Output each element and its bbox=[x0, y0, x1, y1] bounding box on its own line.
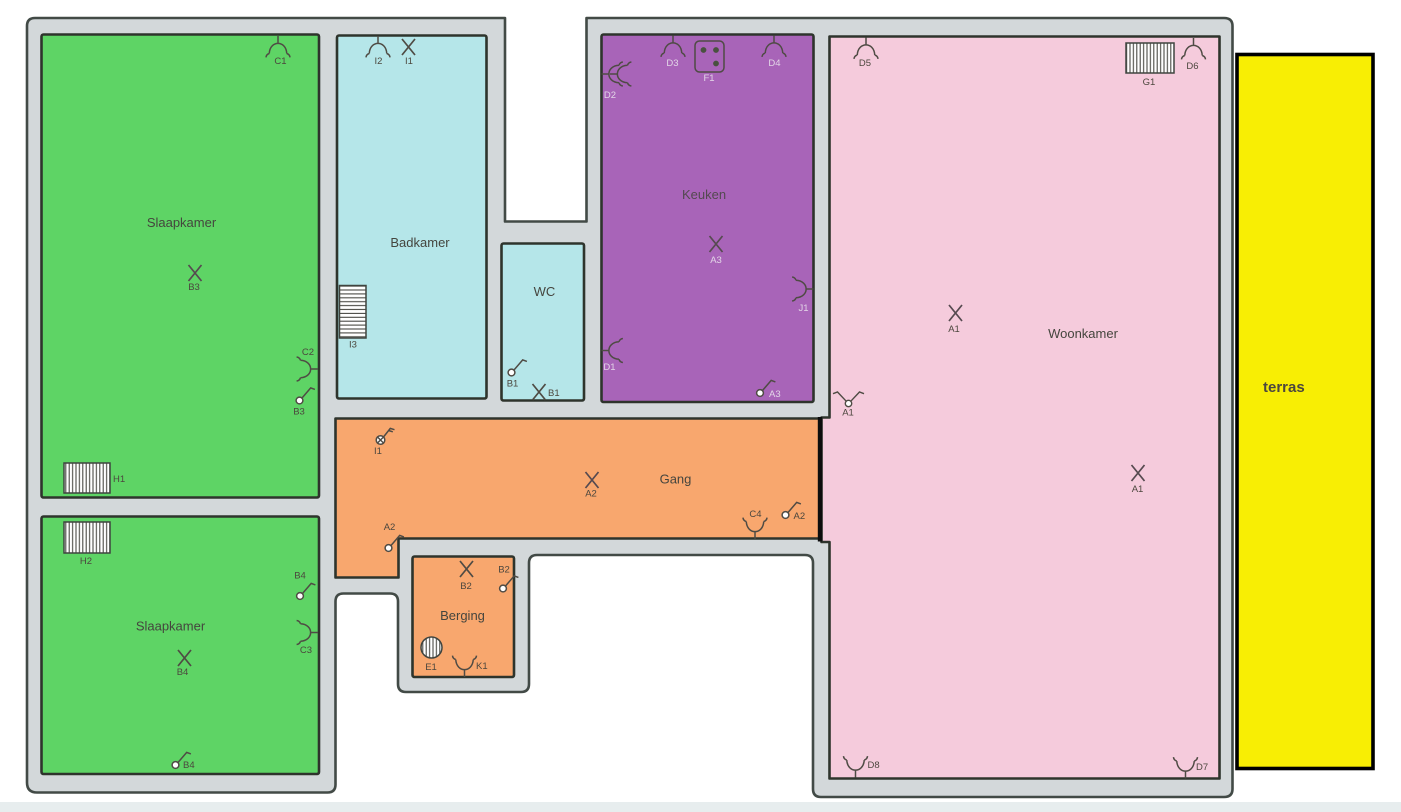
svg-text:H2: H2 bbox=[80, 556, 92, 567]
svg-text:Berging: Berging bbox=[440, 608, 485, 623]
svg-text:D5: D5 bbox=[859, 58, 871, 69]
svg-text:C4: C4 bbox=[749, 509, 761, 520]
svg-text:A1: A1 bbox=[1132, 484, 1144, 495]
svg-text:Badkamer: Badkamer bbox=[390, 235, 450, 250]
svg-text:Slaapkamer: Slaapkamer bbox=[136, 619, 206, 634]
svg-text:E1: E1 bbox=[425, 662, 437, 673]
svg-text:Gang: Gang bbox=[660, 472, 692, 487]
svg-text:A1: A1 bbox=[948, 324, 960, 335]
svg-text:A3: A3 bbox=[769, 389, 781, 400]
svg-text:Keuken: Keuken bbox=[682, 187, 726, 202]
svg-text:J1: J1 bbox=[798, 303, 808, 314]
svg-text:B2: B2 bbox=[460, 581, 472, 592]
svg-text:B4: B4 bbox=[183, 760, 195, 771]
svg-text:K1: K1 bbox=[476, 661, 488, 672]
svg-text:D2: D2 bbox=[604, 90, 616, 101]
svg-text:B1: B1 bbox=[507, 379, 519, 390]
svg-text:I1: I1 bbox=[405, 56, 413, 67]
svg-text:G1: G1 bbox=[1143, 77, 1156, 88]
svg-text:C2: C2 bbox=[302, 347, 314, 358]
svg-text:Slaapkamer: Slaapkamer bbox=[147, 215, 217, 230]
svg-text:A2: A2 bbox=[794, 511, 806, 522]
svg-text:C1: C1 bbox=[274, 56, 286, 67]
svg-text:B2: B2 bbox=[498, 565, 510, 576]
svg-text:C3: C3 bbox=[300, 645, 312, 656]
svg-text:A1: A1 bbox=[842, 408, 854, 419]
svg-text:A2: A2 bbox=[384, 522, 396, 533]
svg-text:D6: D6 bbox=[1186, 61, 1198, 72]
svg-text:A2: A2 bbox=[585, 489, 597, 500]
svg-text:B4: B4 bbox=[177, 667, 189, 678]
svg-text:terras: terras bbox=[1263, 379, 1305, 396]
svg-text:D4: D4 bbox=[768, 58, 780, 69]
svg-text:B3: B3 bbox=[188, 282, 200, 293]
svg-text:D7: D7 bbox=[1196, 762, 1208, 773]
svg-text:I3: I3 bbox=[349, 340, 357, 351]
svg-text:WC: WC bbox=[534, 284, 556, 299]
svg-text:D1: D1 bbox=[603, 362, 615, 373]
svg-text:I2: I2 bbox=[375, 56, 383, 67]
svg-text:D8: D8 bbox=[868, 760, 880, 771]
svg-text:I1: I1 bbox=[374, 446, 382, 457]
svg-text:B1: B1 bbox=[548, 388, 560, 399]
svg-text:A3: A3 bbox=[710, 255, 722, 266]
svg-text:H1: H1 bbox=[113, 474, 125, 485]
svg-text:D3: D3 bbox=[666, 58, 678, 69]
svg-text:B4: B4 bbox=[294, 571, 306, 582]
svg-text:Woonkamer: Woonkamer bbox=[1048, 326, 1119, 341]
svg-text:F1: F1 bbox=[703, 73, 714, 84]
svg-text:B3: B3 bbox=[293, 407, 305, 418]
